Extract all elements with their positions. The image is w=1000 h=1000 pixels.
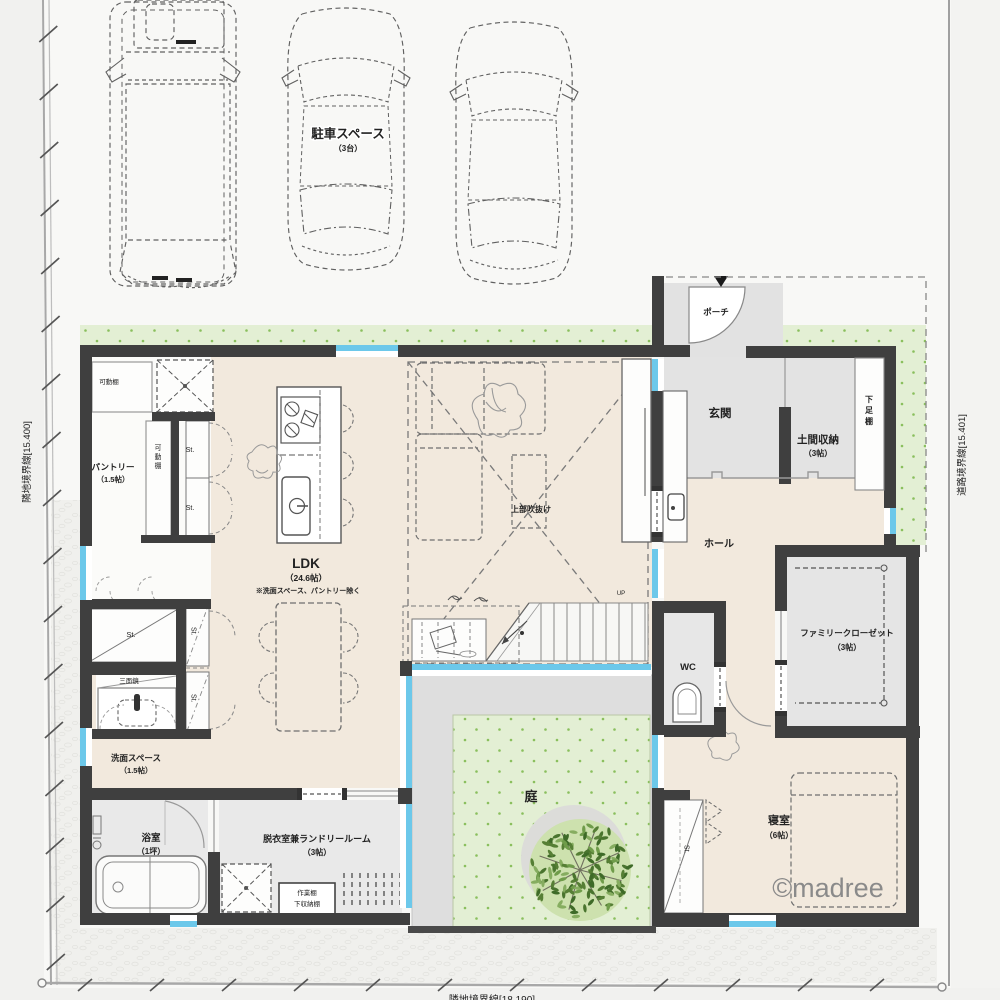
svg-text:WC: WC [680, 662, 696, 673]
svg-text:ポーチ: ポーチ [703, 307, 729, 317]
svg-text:（3帖）: （3帖） [303, 847, 331, 857]
svg-text:動: 動 [155, 452, 162, 461]
svg-text:UP: UP [617, 591, 625, 597]
svg-text:玄関: 玄関 [709, 406, 732, 420]
svg-text:ファミリークローゼット: ファミリークローゼット [800, 628, 894, 638]
svg-text:（3台）: （3台） [334, 143, 362, 153]
svg-text:三面鏡: 三面鏡 [119, 676, 139, 685]
svg-text:道路境界線[15.401]: 道路境界線[15.401] [956, 414, 968, 496]
svg-text:（3帖）: （3帖） [804, 448, 832, 458]
svg-text:寝室: 寝室 [768, 813, 790, 827]
svg-text:St.: St. [186, 505, 195, 512]
svg-text:駐車スペース: 駐車スペース [311, 126, 385, 141]
svg-text:浴室: 浴室 [141, 832, 161, 844]
svg-text:可動棚: 可動棚 [99, 377, 119, 386]
svg-text:上部吹抜け: 上部吹抜け [511, 504, 551, 514]
svg-text:（24.6帖）: （24.6帖） [285, 573, 327, 583]
svg-text:脱衣室兼ランドリールーム: 脱衣室兼ランドリールーム [263, 833, 371, 844]
svg-text:棚: 棚 [865, 416, 873, 426]
svg-text:可: 可 [155, 444, 162, 452]
svg-text:（1.5帖）: （1.5帖） [97, 474, 130, 484]
svg-text:St.: St. [683, 845, 690, 854]
svg-text:※洗面スペース、パントリー除く: ※洗面スペース、パントリー除く [256, 586, 361, 595]
svg-text:庭: 庭 [524, 789, 538, 804]
svg-text:LDK: LDK [292, 556, 320, 571]
svg-text:パントリー: パントリー [92, 462, 135, 472]
svg-text:下: 下 [865, 395, 873, 404]
svg-text:（1坪）: （1坪） [137, 846, 165, 856]
svg-text:St.: St. [190, 627, 197, 636]
svg-text:棚: 棚 [155, 461, 162, 470]
svg-text:隣地境界線[18.190]: 隣地境界線[18.190] [449, 993, 535, 1000]
svg-text:（6帖）: （6帖） [765, 830, 793, 840]
svg-text:土間収納: 土間収納 [797, 433, 839, 446]
svg-text:St.: St. [126, 630, 135, 639]
svg-text:足: 足 [865, 406, 874, 415]
svg-text:洗面スペース: 洗面スペース [111, 753, 161, 763]
svg-text:下収納棚: 下収納棚 [294, 899, 321, 908]
svg-text:隣地境界線[15.400]: 隣地境界線[15.400] [21, 421, 33, 503]
svg-text:（1.5帖）: （1.5帖） [120, 765, 153, 775]
svg-text:©madree: ©madree [772, 873, 883, 903]
svg-text:St.: St. [186, 447, 195, 454]
svg-text:St.: St. [190, 694, 197, 703]
svg-text:ホール: ホール [704, 538, 734, 550]
svg-text:作業棚: 作業棚 [297, 888, 317, 897]
svg-text:（3帖）: （3帖） [833, 642, 861, 652]
